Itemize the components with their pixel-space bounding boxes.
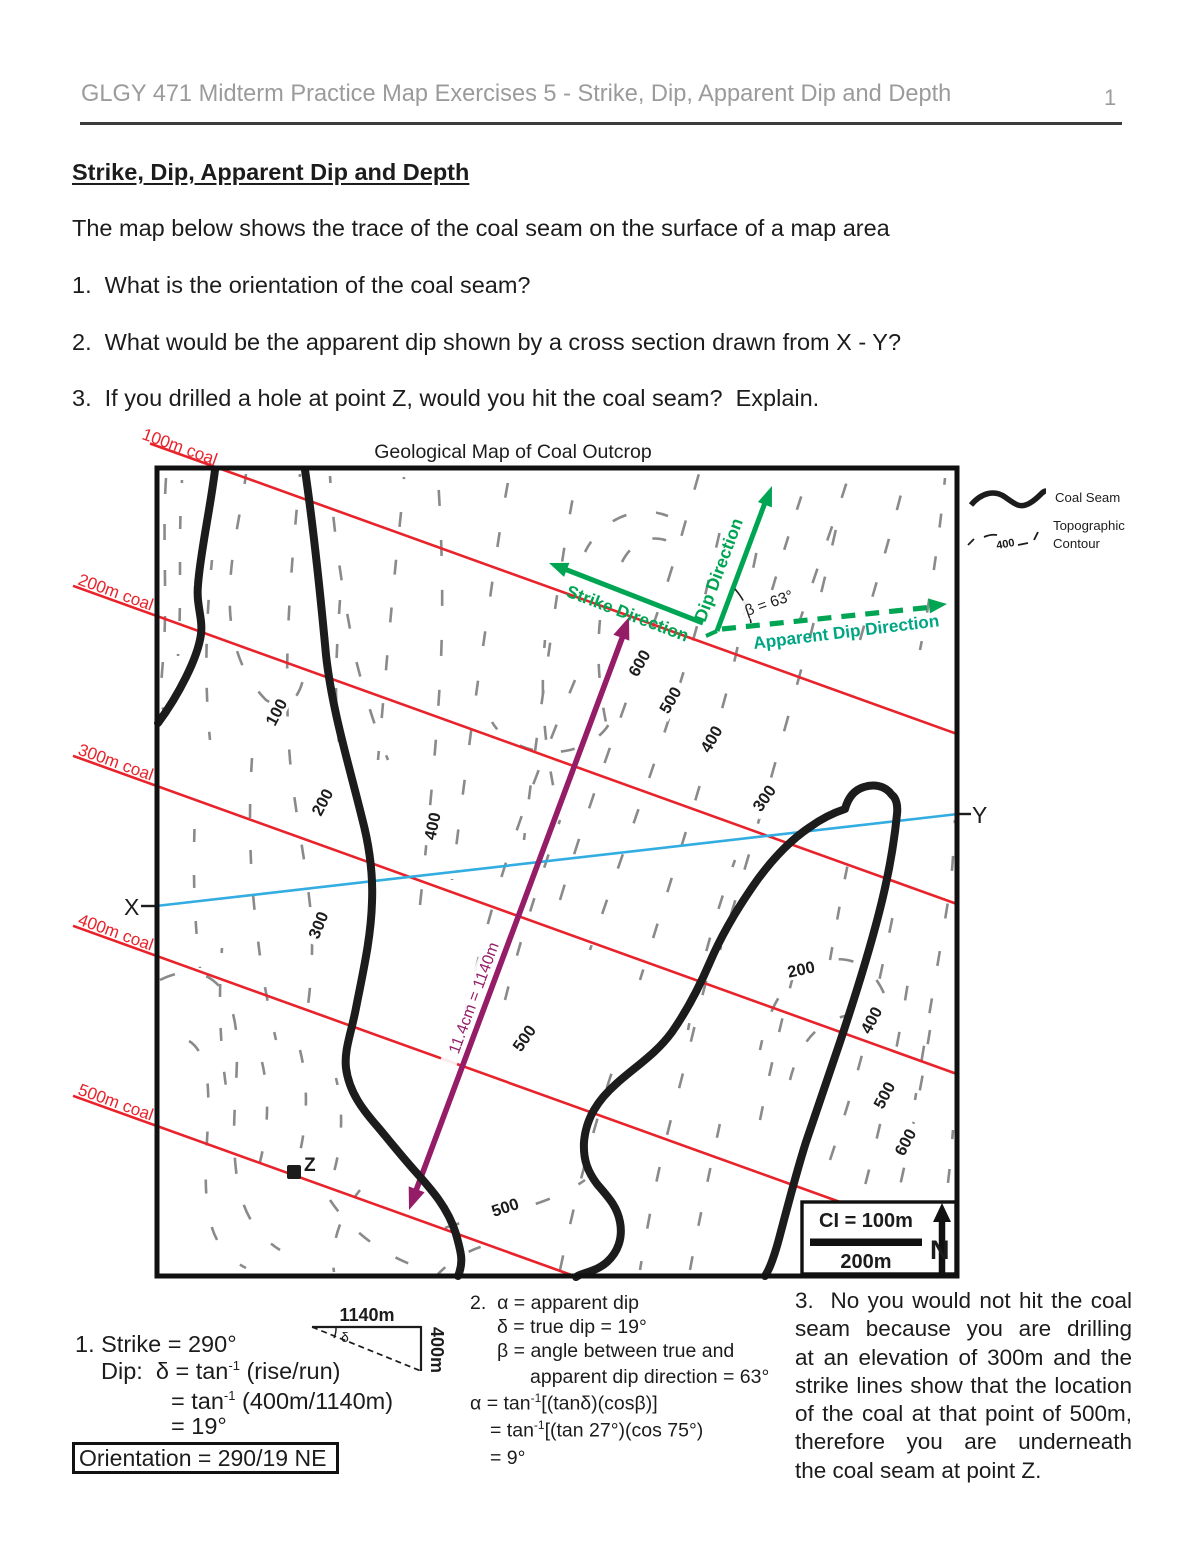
svg-text:δ: δ (341, 1329, 349, 1345)
svg-text:N: N (930, 1235, 950, 1265)
svg-text:Z: Z (304, 1155, 316, 1176)
svg-text:Coal Seam: Coal Seam (1055, 490, 1120, 505)
svg-text:CI = 100m: CI = 100m (819, 1210, 913, 1232)
svg-text:1140m: 1140m (339, 1305, 394, 1325)
svg-text:Y: Y (972, 802, 987, 828)
svg-text:400m: 400m (427, 1327, 447, 1373)
svg-text:Contour: Contour (1053, 536, 1101, 551)
svg-text:Geological Map of Coal Outcrop: Geological Map of Coal Outcrop (374, 441, 652, 463)
svg-text:400: 400 (995, 537, 1015, 552)
svg-text:200m: 200m (840, 1251, 891, 1273)
svg-text:Topographic: Topographic (1053, 518, 1125, 533)
svg-text:X: X (124, 894, 139, 920)
svg-text:100m coal: 100m coal (140, 425, 220, 469)
